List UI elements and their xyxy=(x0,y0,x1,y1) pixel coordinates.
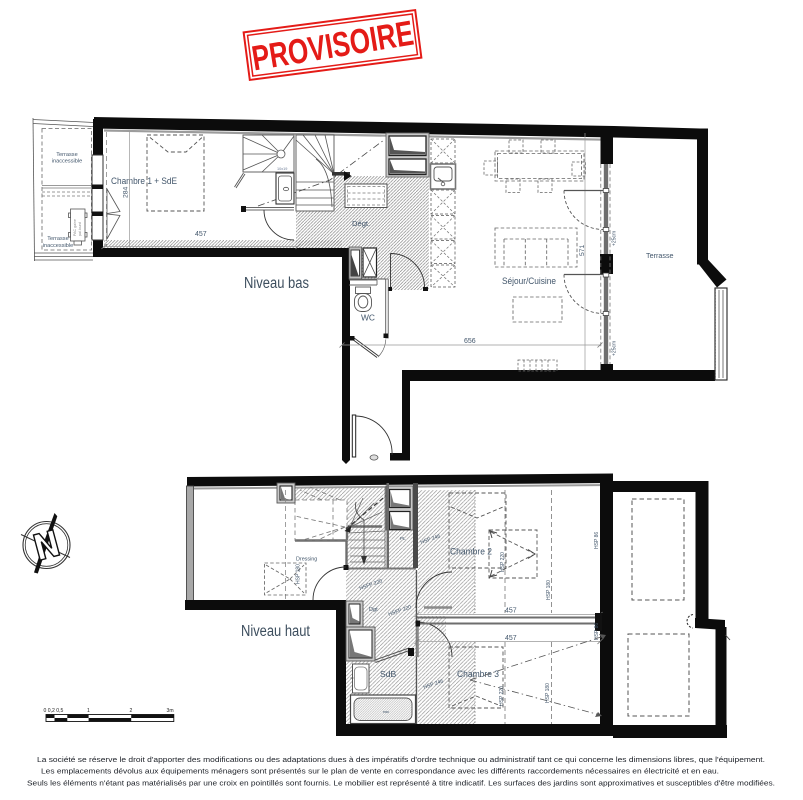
svg-text:457: 457 xyxy=(505,635,517,642)
svg-text:Dégt.: Dégt. xyxy=(352,219,370,228)
svg-text:HSP 180: HSP 180 xyxy=(296,564,302,584)
svg-text:Les emplacements dévolus aux é: Les emplacements dévolus aux équipements… xyxy=(41,767,719,776)
svg-text:inaccessible: inaccessible xyxy=(52,159,82,165)
svg-text:Dressing: Dressing xyxy=(296,557,317,563)
svg-text:457: 457 xyxy=(505,608,517,615)
svg-text:2: 2 xyxy=(130,708,133,714)
svg-text:Seuls les éléments n'étant pas: Seuls les éléments n'étant pas matériali… xyxy=(27,779,775,788)
svg-text:HSP 180: HSP 180 xyxy=(545,683,551,703)
svg-text:HSP 86: HSP 86 xyxy=(594,532,600,549)
svg-text:Chambre 1 + SdE: Chambre 1 + SdE xyxy=(111,176,177,186)
svg-text:inaccessible: inaccessible xyxy=(43,243,73,249)
svg-text:Séjour/Cuisine: Séjour/Cuisine xyxy=(502,276,556,286)
svg-text:La société se réserve le droit: La société se réserve le droit d'apporte… xyxy=(37,755,765,764)
svg-text:284: 284 xyxy=(123,186,130,198)
svg-text:0 0,2 0,5: 0 0,2 0,5 xyxy=(44,708,64,714)
svg-text:HSP 86: HSP 86 xyxy=(594,623,600,640)
svg-text:Chambre 2: Chambre 2 xyxy=(450,547,492,557)
svg-text:Terrasse: Terrasse xyxy=(56,152,77,158)
svg-text:WC: WC xyxy=(361,314,375,323)
svg-text:Niveau bas: Niveau bas xyxy=(244,275,309,292)
svg-text:Terrasse: Terrasse xyxy=(646,251,674,260)
svg-text:571: 571 xyxy=(579,244,586,256)
svg-text:1: 1 xyxy=(87,708,90,714)
svg-text:pal.lourd: pal.lourd xyxy=(78,222,82,236)
svg-text:10x19: 10x19 xyxy=(277,167,287,171)
svg-text:Dgt: Dgt xyxy=(369,607,378,613)
svg-text:+25cm: +25cm xyxy=(612,341,618,356)
svg-text:PL: PL xyxy=(400,536,406,541)
svg-text:SdB: SdB xyxy=(380,669,397,679)
svg-text:656: 656 xyxy=(464,338,476,345)
svg-text:457: 457 xyxy=(195,231,207,238)
svg-text:HSP 220: HSP 220 xyxy=(499,686,505,706)
svg-text:3m: 3m xyxy=(167,708,174,714)
svg-text:PAC gaine: PAC gaine xyxy=(73,219,77,236)
svg-text:HSP 180: HSP 180 xyxy=(546,580,552,600)
svg-text:+25cm: +25cm xyxy=(612,231,618,246)
svg-text:Chambre 3: Chambre 3 xyxy=(457,669,499,679)
svg-text:eau: eau xyxy=(383,710,389,714)
svg-text:Terrasse: Terrasse xyxy=(47,236,68,242)
svg-text:Niveau haut: Niveau haut xyxy=(241,623,311,640)
